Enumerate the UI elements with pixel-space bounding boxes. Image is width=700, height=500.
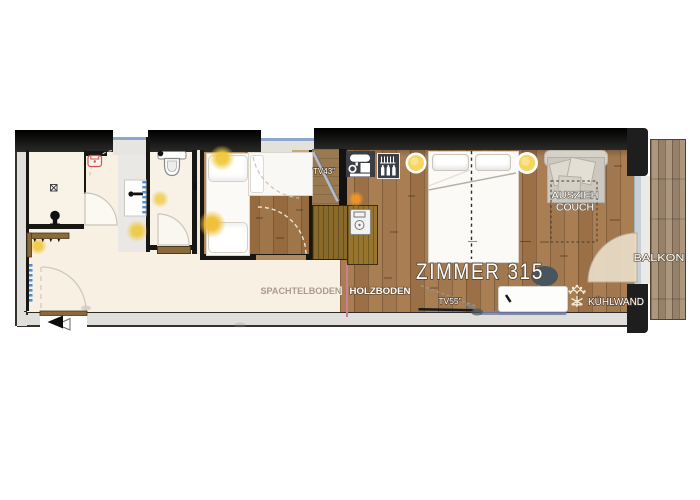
svg-text:AUSZIEH: AUSZIEH — [552, 191, 599, 202]
svg-text:ZIMMER 315: ZIMMER 315 — [416, 259, 544, 284]
svg-text:SPACHTELBODEN: SPACHTELBODEN — [261, 286, 342, 297]
svg-text:HOLZBODEN: HOLZBODEN — [350, 286, 411, 297]
svg-text:BALKON: BALKON — [634, 252, 685, 264]
svg-text:COUCH: COUCH — [556, 203, 594, 214]
svg-text:KÜHLWAND: KÜHLWAND — [588, 296, 644, 308]
svg-text:TV55": TV55" — [438, 296, 461, 306]
svg-text:TV43": TV43" — [313, 167, 335, 176]
